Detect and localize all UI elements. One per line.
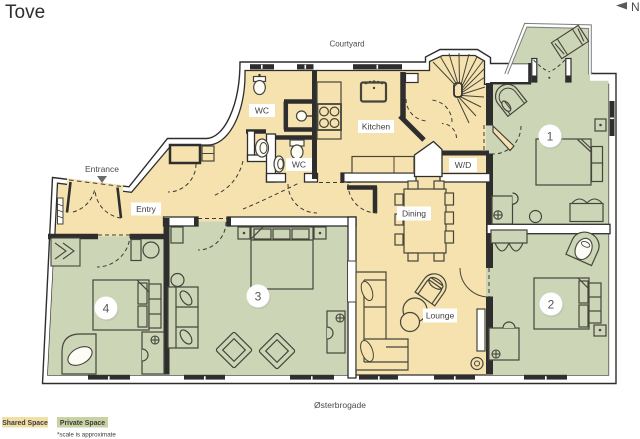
svg-text:W/D: W/D (455, 160, 472, 170)
svg-text:3: 3 (255, 290, 262, 304)
svg-text:Entrance: Entrance (85, 164, 119, 174)
svg-text:Dining: Dining (402, 209, 426, 219)
svg-text:Tove: Tove (5, 2, 45, 23)
svg-text:WC: WC (292, 160, 306, 170)
svg-text:*scale is approximate: *scale is approximate (57, 432, 116, 439)
svg-text:WC: WC (255, 106, 269, 116)
svg-text:Kitchen: Kitchen (362, 122, 391, 132)
svg-text:Lounge: Lounge (426, 311, 455, 321)
svg-text:4: 4 (103, 302, 110, 316)
svg-text:2: 2 (548, 298, 555, 312)
svg-text:Shared Space: Shared Space (2, 420, 48, 427)
svg-text:1: 1 (547, 130, 554, 144)
svg-text:Entry: Entry (136, 204, 157, 214)
svg-text:N: N (631, 0, 640, 14)
svg-text:Østerbrogade: Østerbrogade (314, 400, 366, 410)
svg-text:Private Space: Private Space (60, 420, 105, 427)
svg-text:Courtyard: Courtyard (329, 40, 364, 49)
